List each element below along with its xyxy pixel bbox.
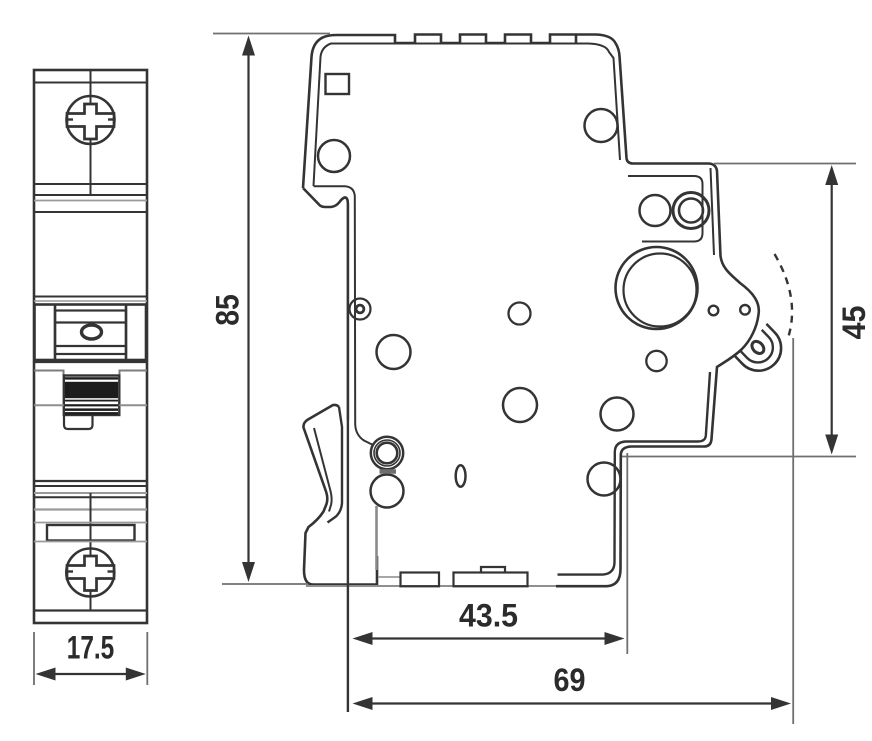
svg-text:43.5: 43.5 <box>459 598 518 634</box>
svg-text:17.5: 17.5 <box>67 630 115 666</box>
svg-text:45: 45 <box>836 306 872 340</box>
svg-text:85: 85 <box>210 294 246 326</box>
svg-text:69: 69 <box>554 662 586 698</box>
